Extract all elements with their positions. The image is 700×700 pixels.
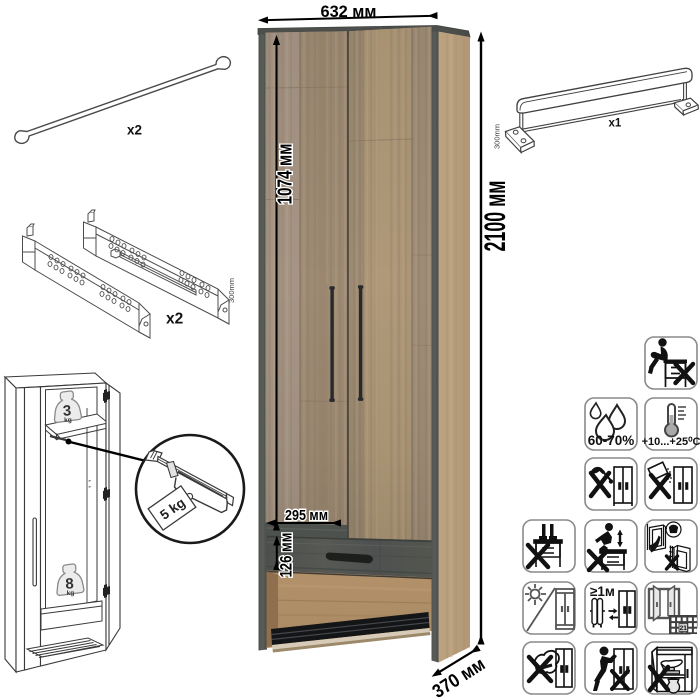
svg-text:+10...+25⁰С: +10...+25⁰С (642, 436, 700, 448)
svg-text:1074 мм: 1074 мм (275, 144, 297, 205)
svg-text:632 мм: 632 мм (321, 2, 377, 21)
svg-text:2100 мм: 2100 мм (479, 181, 512, 252)
svg-text:295 мм: 295 мм (285, 507, 328, 524)
svg-text:300mm: 300mm (227, 278, 236, 303)
svg-text:x2: x2 (127, 123, 142, 138)
svg-text:kg: kg (67, 590, 75, 597)
svg-text:60-70%: 60-70% (588, 433, 635, 448)
svg-text:x2: x2 (166, 311, 183, 328)
svg-text:126 мм: 126 мм (277, 533, 296, 578)
svg-text:300mm: 300mm (493, 124, 502, 149)
svg-text:≥1м: ≥1м (590, 584, 615, 599)
svg-text:21: 21 (680, 625, 688, 632)
svg-text:x1: x1 (609, 118, 622, 130)
svg-text:kg: kg (64, 417, 72, 424)
